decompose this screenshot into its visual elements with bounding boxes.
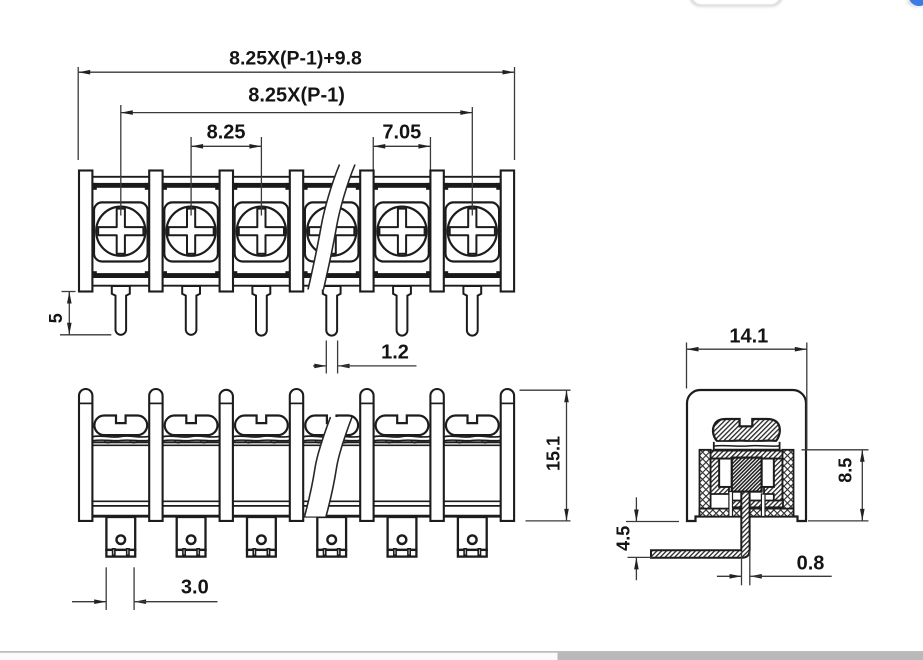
svg-text:7.05: 7.05: [382, 122, 421, 144]
svg-text:5: 5: [46, 313, 66, 323]
svg-text:14.1: 14.1: [729, 325, 768, 347]
svg-text:8.25X(P-1): 8.25X(P-1): [248, 85, 345, 107]
svg-text:8.25: 8.25: [207, 122, 246, 144]
svg-text:8.25X(P-1)+9.8: 8.25X(P-1)+9.8: [229, 48, 362, 70]
svg-text:15.1: 15.1: [543, 436, 563, 471]
svg-text:4.5: 4.5: [614, 526, 634, 551]
svg-text:1.2: 1.2: [381, 342, 409, 364]
svg-text:0.8: 0.8: [797, 552, 825, 574]
svg-text:3.0: 3.0: [181, 577, 209, 599]
svg-text:8.5: 8.5: [835, 458, 855, 483]
